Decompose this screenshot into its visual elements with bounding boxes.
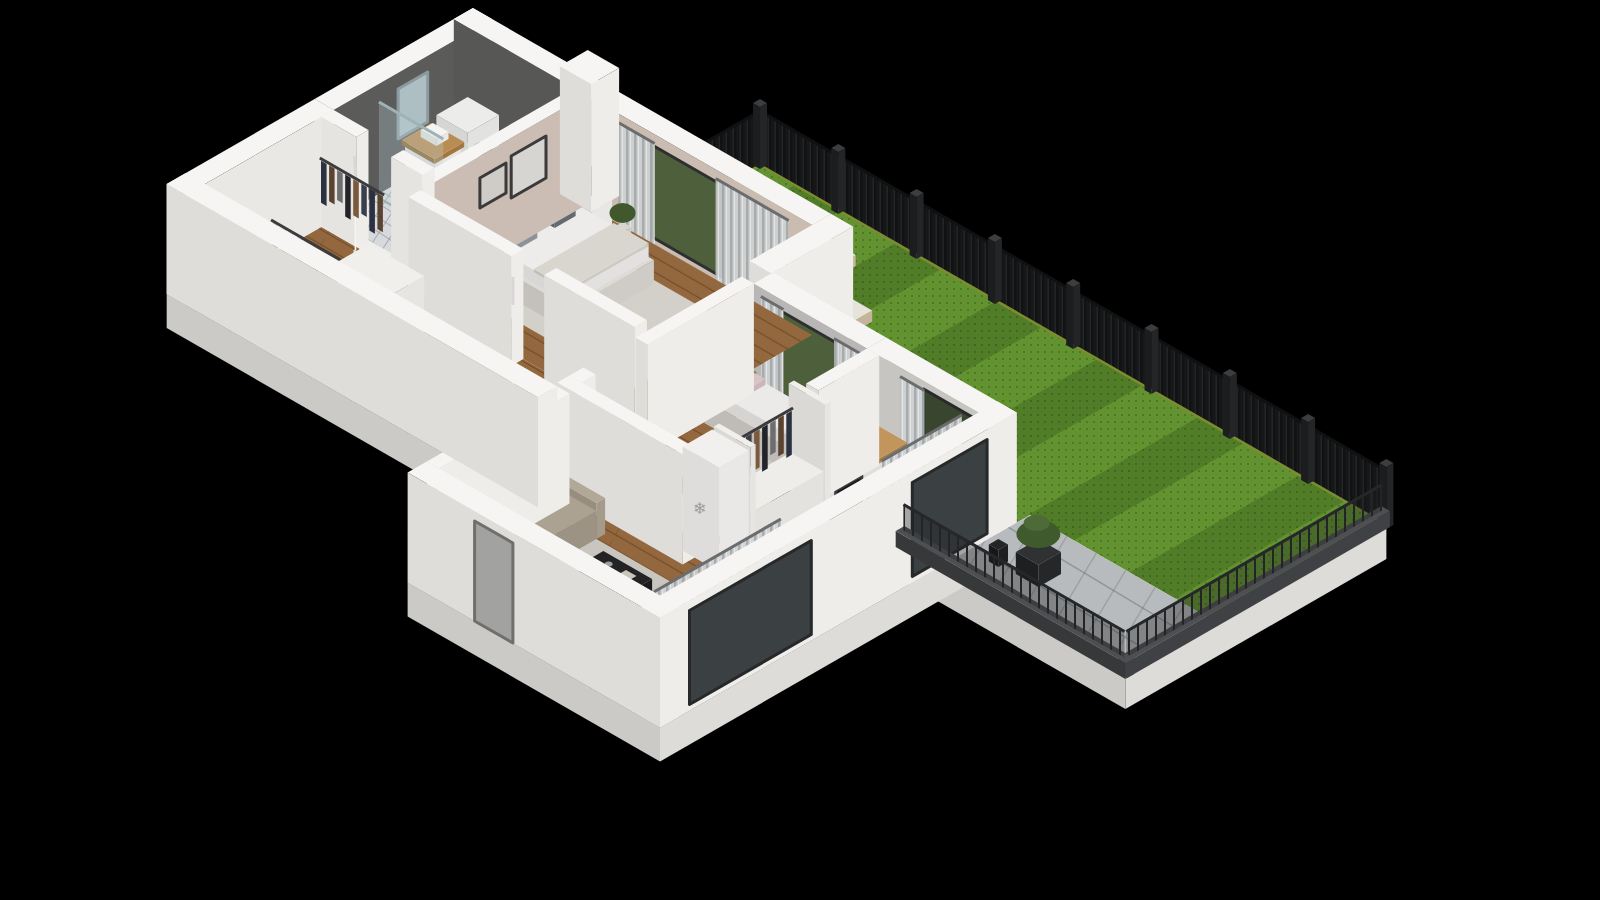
floorplan-stage: ❄ <box>0 0 1600 900</box>
wall-bathroom-south <box>322 110 369 247</box>
fridge-snowflake-icon: ❄ <box>693 499 706 518</box>
planter-foliage-light <box>1024 515 1050 531</box>
apartment-isometric-render: ❄ <box>0 0 1600 900</box>
chimney <box>560 50 619 212</box>
svg-text:❄: ❄ <box>693 499 706 518</box>
plant-foliage <box>610 203 636 223</box>
entrance-door <box>475 521 513 643</box>
scene-root: ❄ <box>167 8 1394 762</box>
